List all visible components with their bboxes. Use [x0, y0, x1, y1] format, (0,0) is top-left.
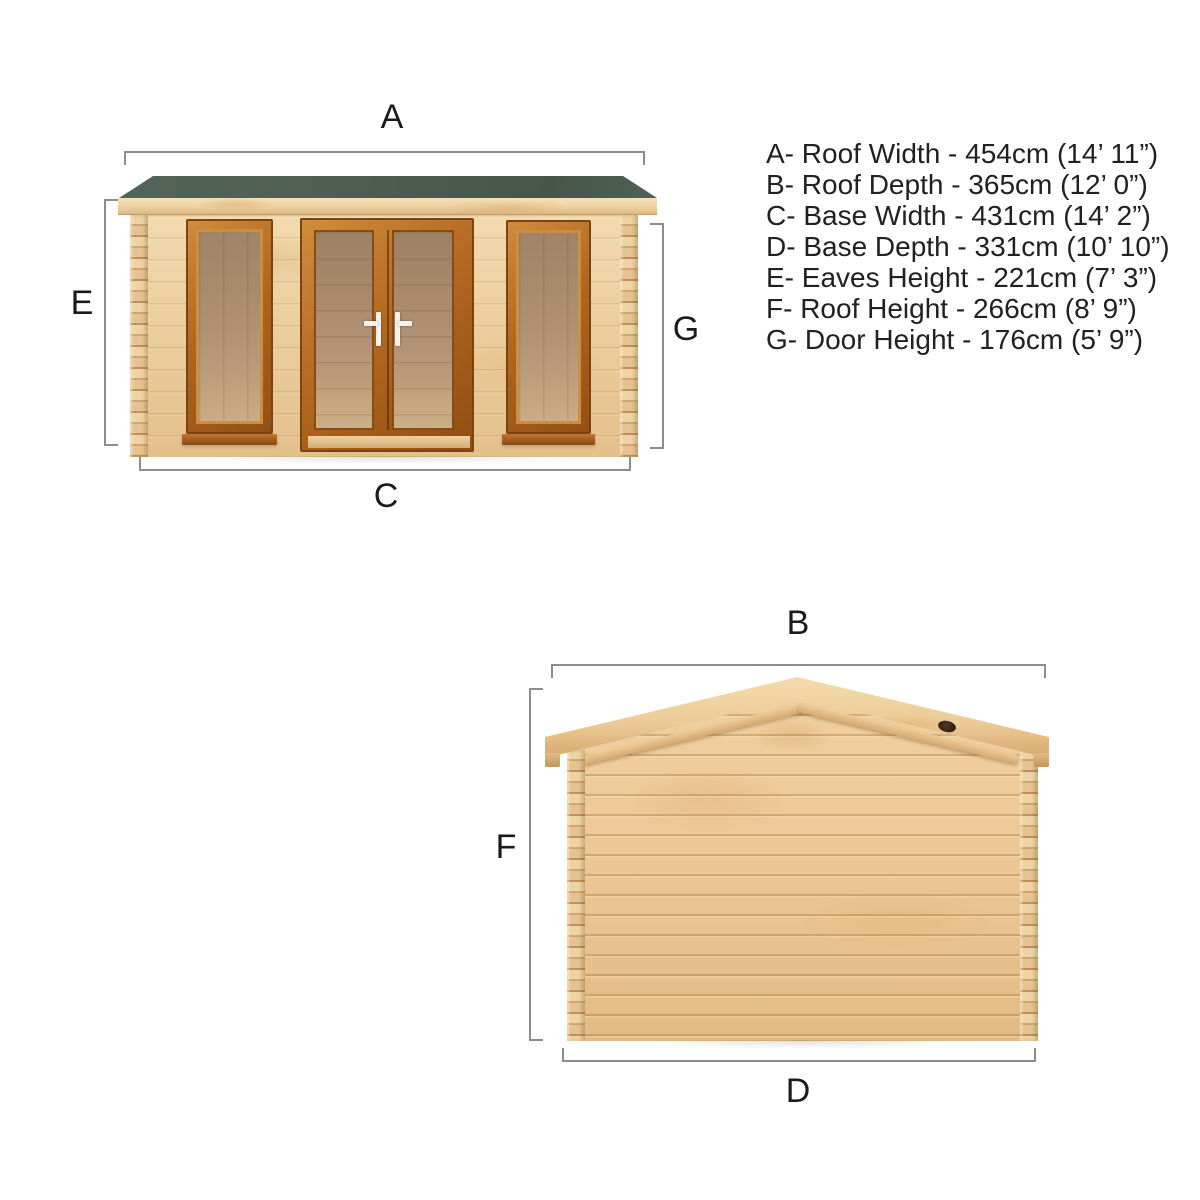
- dim-label-roof-depth: B: [778, 606, 818, 640]
- eave-end-cap-right: [1034, 753, 1049, 767]
- door-handle-right-bar: [395, 312, 400, 346]
- left-window-glass: [196, 229, 263, 424]
- dimension-legend: A- Roof Width - 454cm (14’ 11”) B- Roof …: [766, 138, 1170, 355]
- eave-end-cap-left: [545, 753, 560, 767]
- dim-line-base-width: [139, 469, 631, 471]
- side-gable-wall: [567, 694, 1038, 1041]
- right-window: [506, 220, 591, 434]
- corner-log-joint-left: [130, 215, 148, 457]
- product-dimension-diagram: A: [0, 0, 1200, 1200]
- left-window-sill: [182, 434, 277, 445]
- door-handle-left-bar: [376, 312, 381, 346]
- dim-label-door-height: G: [666, 312, 706, 346]
- dim-line-door-height: [662, 223, 664, 449]
- door-handle-left-lever: [364, 321, 378, 326]
- legend-line-roof-width: A- Roof Width - 454cm (14’ 11”): [766, 138, 1170, 169]
- left-window: [186, 219, 273, 434]
- corner-log-joint-right: [620, 215, 638, 457]
- dim-label-eaves-height: E: [62, 286, 102, 320]
- door-right-glass: [392, 230, 454, 430]
- dim-line-roof-depth: [551, 664, 1046, 666]
- roof-knot: [937, 719, 957, 734]
- dim-label-base-depth: D: [778, 1074, 818, 1108]
- dim-label-base-width: C: [366, 479, 406, 513]
- door-threshold: [308, 436, 470, 448]
- door-handle-right-lever: [398, 321, 412, 326]
- dim-line-roof-height: [529, 688, 531, 1041]
- side-ground-shadow: [567, 1040, 1038, 1052]
- dim-line-roof-width: [124, 151, 645, 153]
- front-wall: [130, 215, 638, 457]
- dim-label-roof-height: F: [486, 830, 526, 864]
- double-door: [300, 218, 474, 452]
- right-window-glass: [516, 230, 581, 424]
- legend-line-roof-height: F- Roof Height - 266cm (8’ 9”): [766, 293, 1170, 324]
- legend-line-base-width: C- Base Width - 431cm (14’ 2”): [766, 200, 1170, 231]
- legend-line-door-height: G- Door Height - 176cm (5’ 9”): [766, 324, 1170, 355]
- dim-line-base-depth: [562, 1060, 1036, 1062]
- door-left-glass: [314, 230, 374, 430]
- side-corner-log-joint-right: [1020, 750, 1038, 1041]
- right-window-sill: [502, 434, 595, 445]
- legend-line-roof-depth: B- Roof Depth - 365cm (12’ 0”): [766, 169, 1170, 200]
- front-ground-shadow: [130, 456, 638, 468]
- side-corner-log-joint-left: [567, 750, 585, 1041]
- legend-line-eaves-height: E- Eaves Height - 221cm (7’ 3”): [766, 262, 1170, 293]
- front-roof-fascia: [118, 198, 657, 215]
- dim-label-roof-width: A: [372, 100, 412, 134]
- door-meeting-stile: [387, 230, 389, 430]
- front-roof-felt: [119, 176, 657, 198]
- dim-line-eaves-height: [104, 199, 106, 446]
- legend-line-base-depth: D- Base Depth - 331cm (10’ 10”): [766, 231, 1170, 262]
